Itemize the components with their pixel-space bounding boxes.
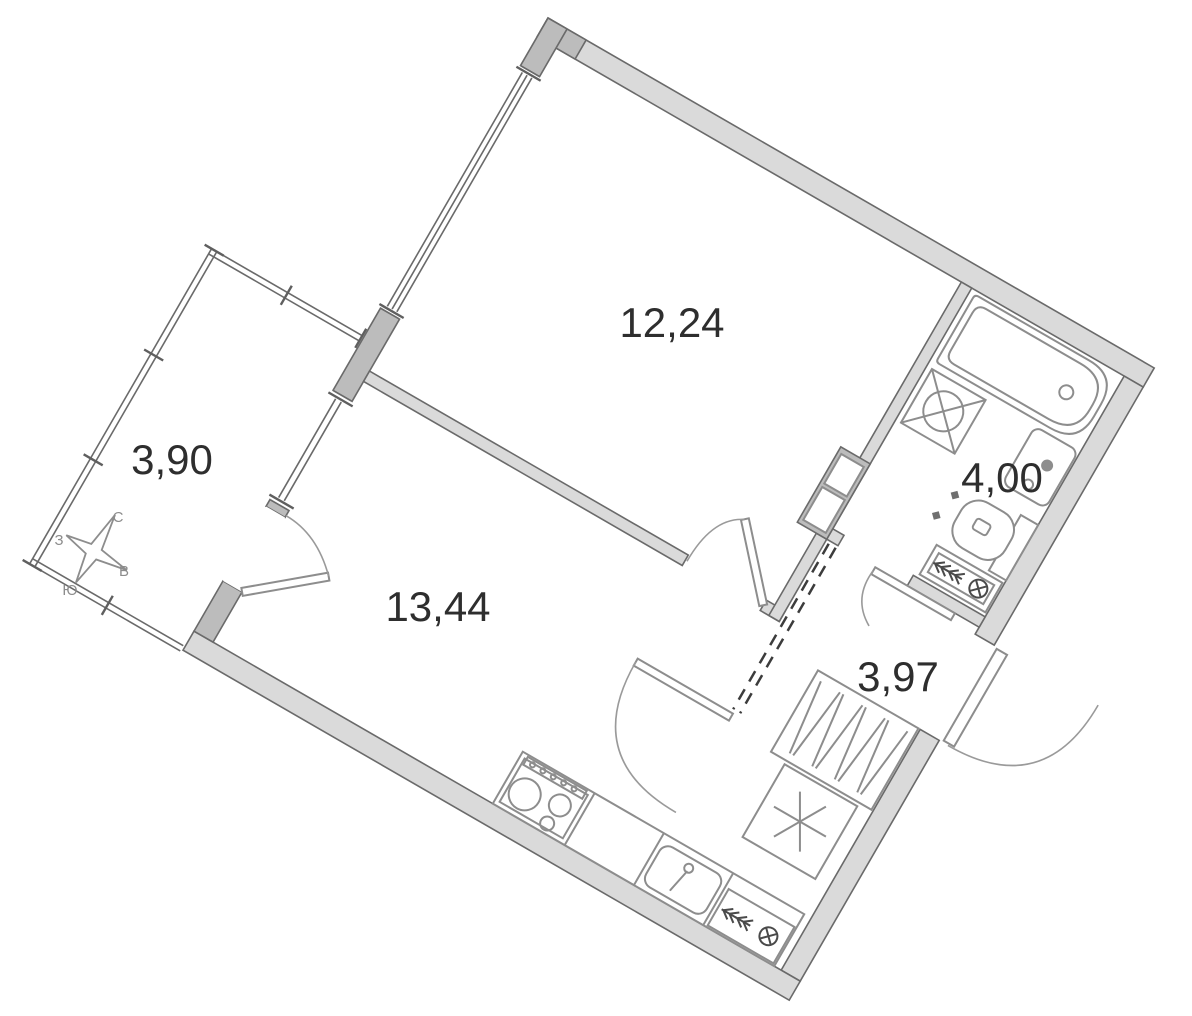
compass-rose: С З В Ю	[48, 499, 148, 602]
balcony-area-label: 3,90	[131, 436, 213, 483]
living-room-area-label: 12,24	[619, 299, 724, 346]
floor-plan-drawing: С З В Ю 12,24 13,44 4,00 3,97 3,90	[0, 0, 1192, 1016]
apartment-plan	[19, 0, 1192, 1016]
entry-door	[943, 647, 1098, 800]
compass-east-label: В	[119, 563, 129, 580]
floor-plan-page: С З В Ю 12,24 13,44 4,00 3,97 3,90	[0, 0, 1192, 1016]
window-living-room	[378, 64, 542, 320]
bathroom-area-label: 4,00	[961, 454, 1043, 501]
hall-area-label: 3,97	[857, 653, 939, 700]
compass-west-label: З	[54, 532, 63, 549]
window-balcony-block	[267, 389, 354, 512]
balcony-door	[221, 505, 346, 630]
kitchen-living-area-label: 13,44	[385, 583, 490, 630]
compass-north-label: С	[113, 509, 124, 526]
compass-south-label: Ю	[62, 582, 77, 599]
